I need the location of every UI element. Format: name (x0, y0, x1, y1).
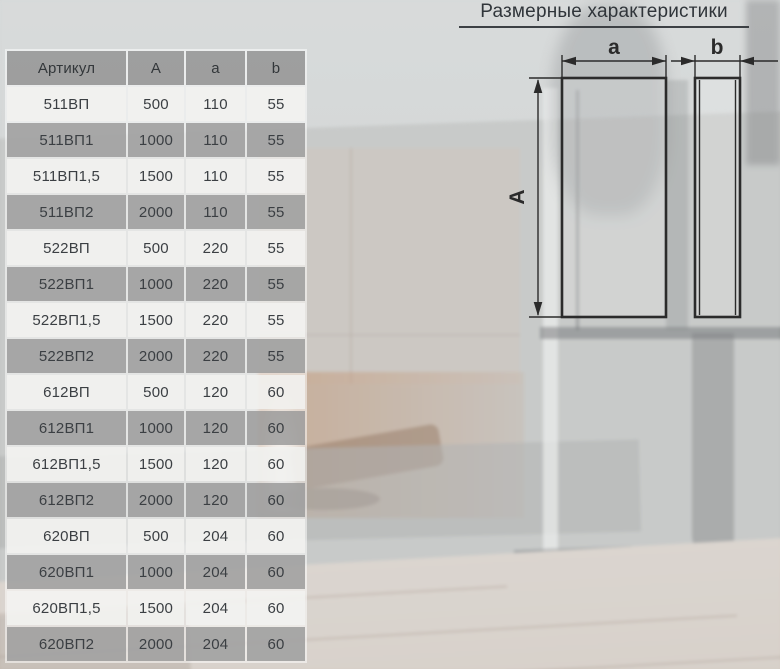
cell-A: 1500 (128, 591, 184, 625)
arrow-right-icon (681, 57, 695, 65)
table-row: 511ВП 500 110 55 (7, 87, 305, 121)
cell-b: 55 (247, 231, 305, 265)
title-underline (459, 26, 749, 28)
cell-A: 2000 (128, 195, 184, 229)
side-view-rect (695, 78, 740, 317)
cell-a: 110 (186, 87, 245, 121)
section-title-block: Размерные характеристики (459, 1, 749, 28)
cell-A: 500 (128, 375, 184, 409)
photo-panel-divider (350, 148, 352, 384)
cell-b: 55 (247, 87, 305, 121)
cell-a: 110 (186, 159, 245, 193)
cell-b: 60 (247, 447, 305, 481)
arrow-left-icon (740, 57, 754, 65)
cell-b: 55 (247, 123, 305, 157)
dimension-b: b (671, 36, 778, 77)
table-row: 620ВП 500 204 60 (7, 519, 305, 553)
cell-artikul: 620ВП2 (7, 627, 126, 661)
photo-table-leg-foot (686, 554, 759, 573)
arrow-right-icon (652, 57, 666, 65)
cell-artikul: 522ВП (7, 231, 126, 265)
cell-A: 1500 (128, 447, 184, 481)
cell-A: 1000 (128, 267, 184, 301)
cell-artikul: 620ВП1 (7, 555, 126, 589)
table-row: 612ВП 500 120 60 (7, 375, 305, 409)
table-row: 511ВП1 1000 110 55 (7, 123, 305, 157)
cell-artikul: 620ВП1,5 (7, 591, 126, 625)
cell-A: 2000 (128, 483, 184, 517)
cell-A: 500 (128, 87, 184, 121)
cell-artikul: 511ВП1 (7, 123, 126, 157)
table-row: 612ВП1 1000 120 60 (7, 411, 305, 445)
table-row: 522ВП1 1000 220 55 (7, 267, 305, 301)
cell-A: 1000 (128, 555, 184, 589)
cell-b: 60 (247, 375, 305, 409)
cell-b: 55 (247, 303, 305, 337)
cell-b: 55 (247, 159, 305, 193)
cell-artikul: 522ВП1 (7, 267, 126, 301)
cell-a: 204 (186, 627, 245, 661)
column-header-a: a (186, 51, 245, 85)
cell-a: 120 (186, 447, 245, 481)
cell-artikul: 612ВП1 (7, 411, 126, 445)
cell-b: 60 (247, 555, 305, 589)
dimension-b-label: b (711, 36, 724, 59)
table-row: 612ВП2 2000 120 60 (7, 483, 305, 517)
cell-a: 220 (186, 339, 245, 373)
table-row: 522ВП1,5 1500 220 55 (7, 303, 305, 337)
arrow-up-icon (534, 79, 543, 93)
table-row: 522ВП2 2000 220 55 (7, 339, 305, 373)
table-row: 620ВП1 1000 204 60 (7, 555, 305, 589)
table-row: 522ВП 500 220 55 (7, 231, 305, 265)
cell-A: 2000 (128, 627, 184, 661)
photo-logs (289, 423, 444, 490)
dimension-diagram: a b A (505, 33, 780, 333)
cell-artikul: 511ВП2 (7, 195, 126, 229)
arrow-down-icon (534, 302, 543, 316)
column-header-artikul: Артикул (7, 51, 126, 85)
cell-A: 1500 (128, 303, 184, 337)
cell-b: 55 (247, 195, 305, 229)
cell-artikul: 511ВП (7, 87, 126, 121)
table-row: 612ВП1,5 1500 120 60 (7, 447, 305, 481)
column-header-A: A (128, 51, 184, 85)
dimension-a: a (562, 36, 666, 77)
cell-b: 60 (247, 627, 305, 661)
cell-b: 60 (247, 483, 305, 517)
cell-A: 500 (128, 231, 184, 265)
cell-b: 60 (247, 519, 305, 553)
cell-artikul: 612ВП1,5 (7, 447, 126, 481)
cell-A: 1000 (128, 123, 184, 157)
dimension-A: A (506, 78, 562, 317)
table-row: 511ВП1,5 1500 110 55 (7, 159, 305, 193)
size-spec-table: Артикул A a b 511ВП 500 110 55 511ВП1 10… (5, 49, 307, 663)
cell-a: 120 (186, 411, 245, 445)
catalog-size-section: Размерные характеристики Артикул A a b 5… (0, 0, 780, 669)
cell-a: 110 (186, 123, 245, 157)
cell-a: 220 (186, 303, 245, 337)
table-row: 620ВП1,5 1500 204 60 (7, 591, 305, 625)
arrow-left-icon (562, 57, 576, 65)
cell-b: 55 (247, 339, 305, 373)
cell-a: 120 (186, 375, 245, 409)
column-header-b: b (247, 51, 305, 85)
cell-A: 1000 (128, 411, 184, 445)
cell-a: 204 (186, 555, 245, 589)
header-row: Артикул A a b (7, 51, 305, 85)
cell-a: 220 (186, 267, 245, 301)
table-row: 620ВП2 2000 204 60 (7, 627, 305, 661)
cell-artikul: 612ВП (7, 375, 126, 409)
cell-a: 220 (186, 231, 245, 265)
cell-b: 60 (247, 591, 305, 625)
cell-artikul: 612ВП2 (7, 483, 126, 517)
cell-artikul: 620ВП (7, 519, 126, 553)
cell-a: 120 (186, 483, 245, 517)
cell-A: 1500 (128, 159, 184, 193)
dimension-A-label: A (506, 189, 529, 204)
photo-table-leg (692, 333, 734, 561)
cell-a: 204 (186, 591, 245, 625)
cell-artikul: 522ВП2 (7, 339, 126, 373)
cell-a: 204 (186, 519, 245, 553)
cell-b: 60 (247, 411, 305, 445)
front-view-rect (562, 78, 666, 317)
photo-hearth-box (514, 546, 634, 616)
cell-artikul: 511ВП1,5 (7, 159, 126, 193)
cell-A: 2000 (128, 339, 184, 373)
table-row: 511ВП2 2000 110 55 (7, 195, 305, 229)
section-title: Размерные характеристики (459, 1, 749, 23)
cell-b: 55 (247, 267, 305, 301)
cell-a: 110 (186, 195, 245, 229)
dimension-a-label: a (608, 36, 620, 59)
cell-artikul: 522ВП1,5 (7, 303, 126, 337)
cell-A: 500 (128, 519, 184, 553)
